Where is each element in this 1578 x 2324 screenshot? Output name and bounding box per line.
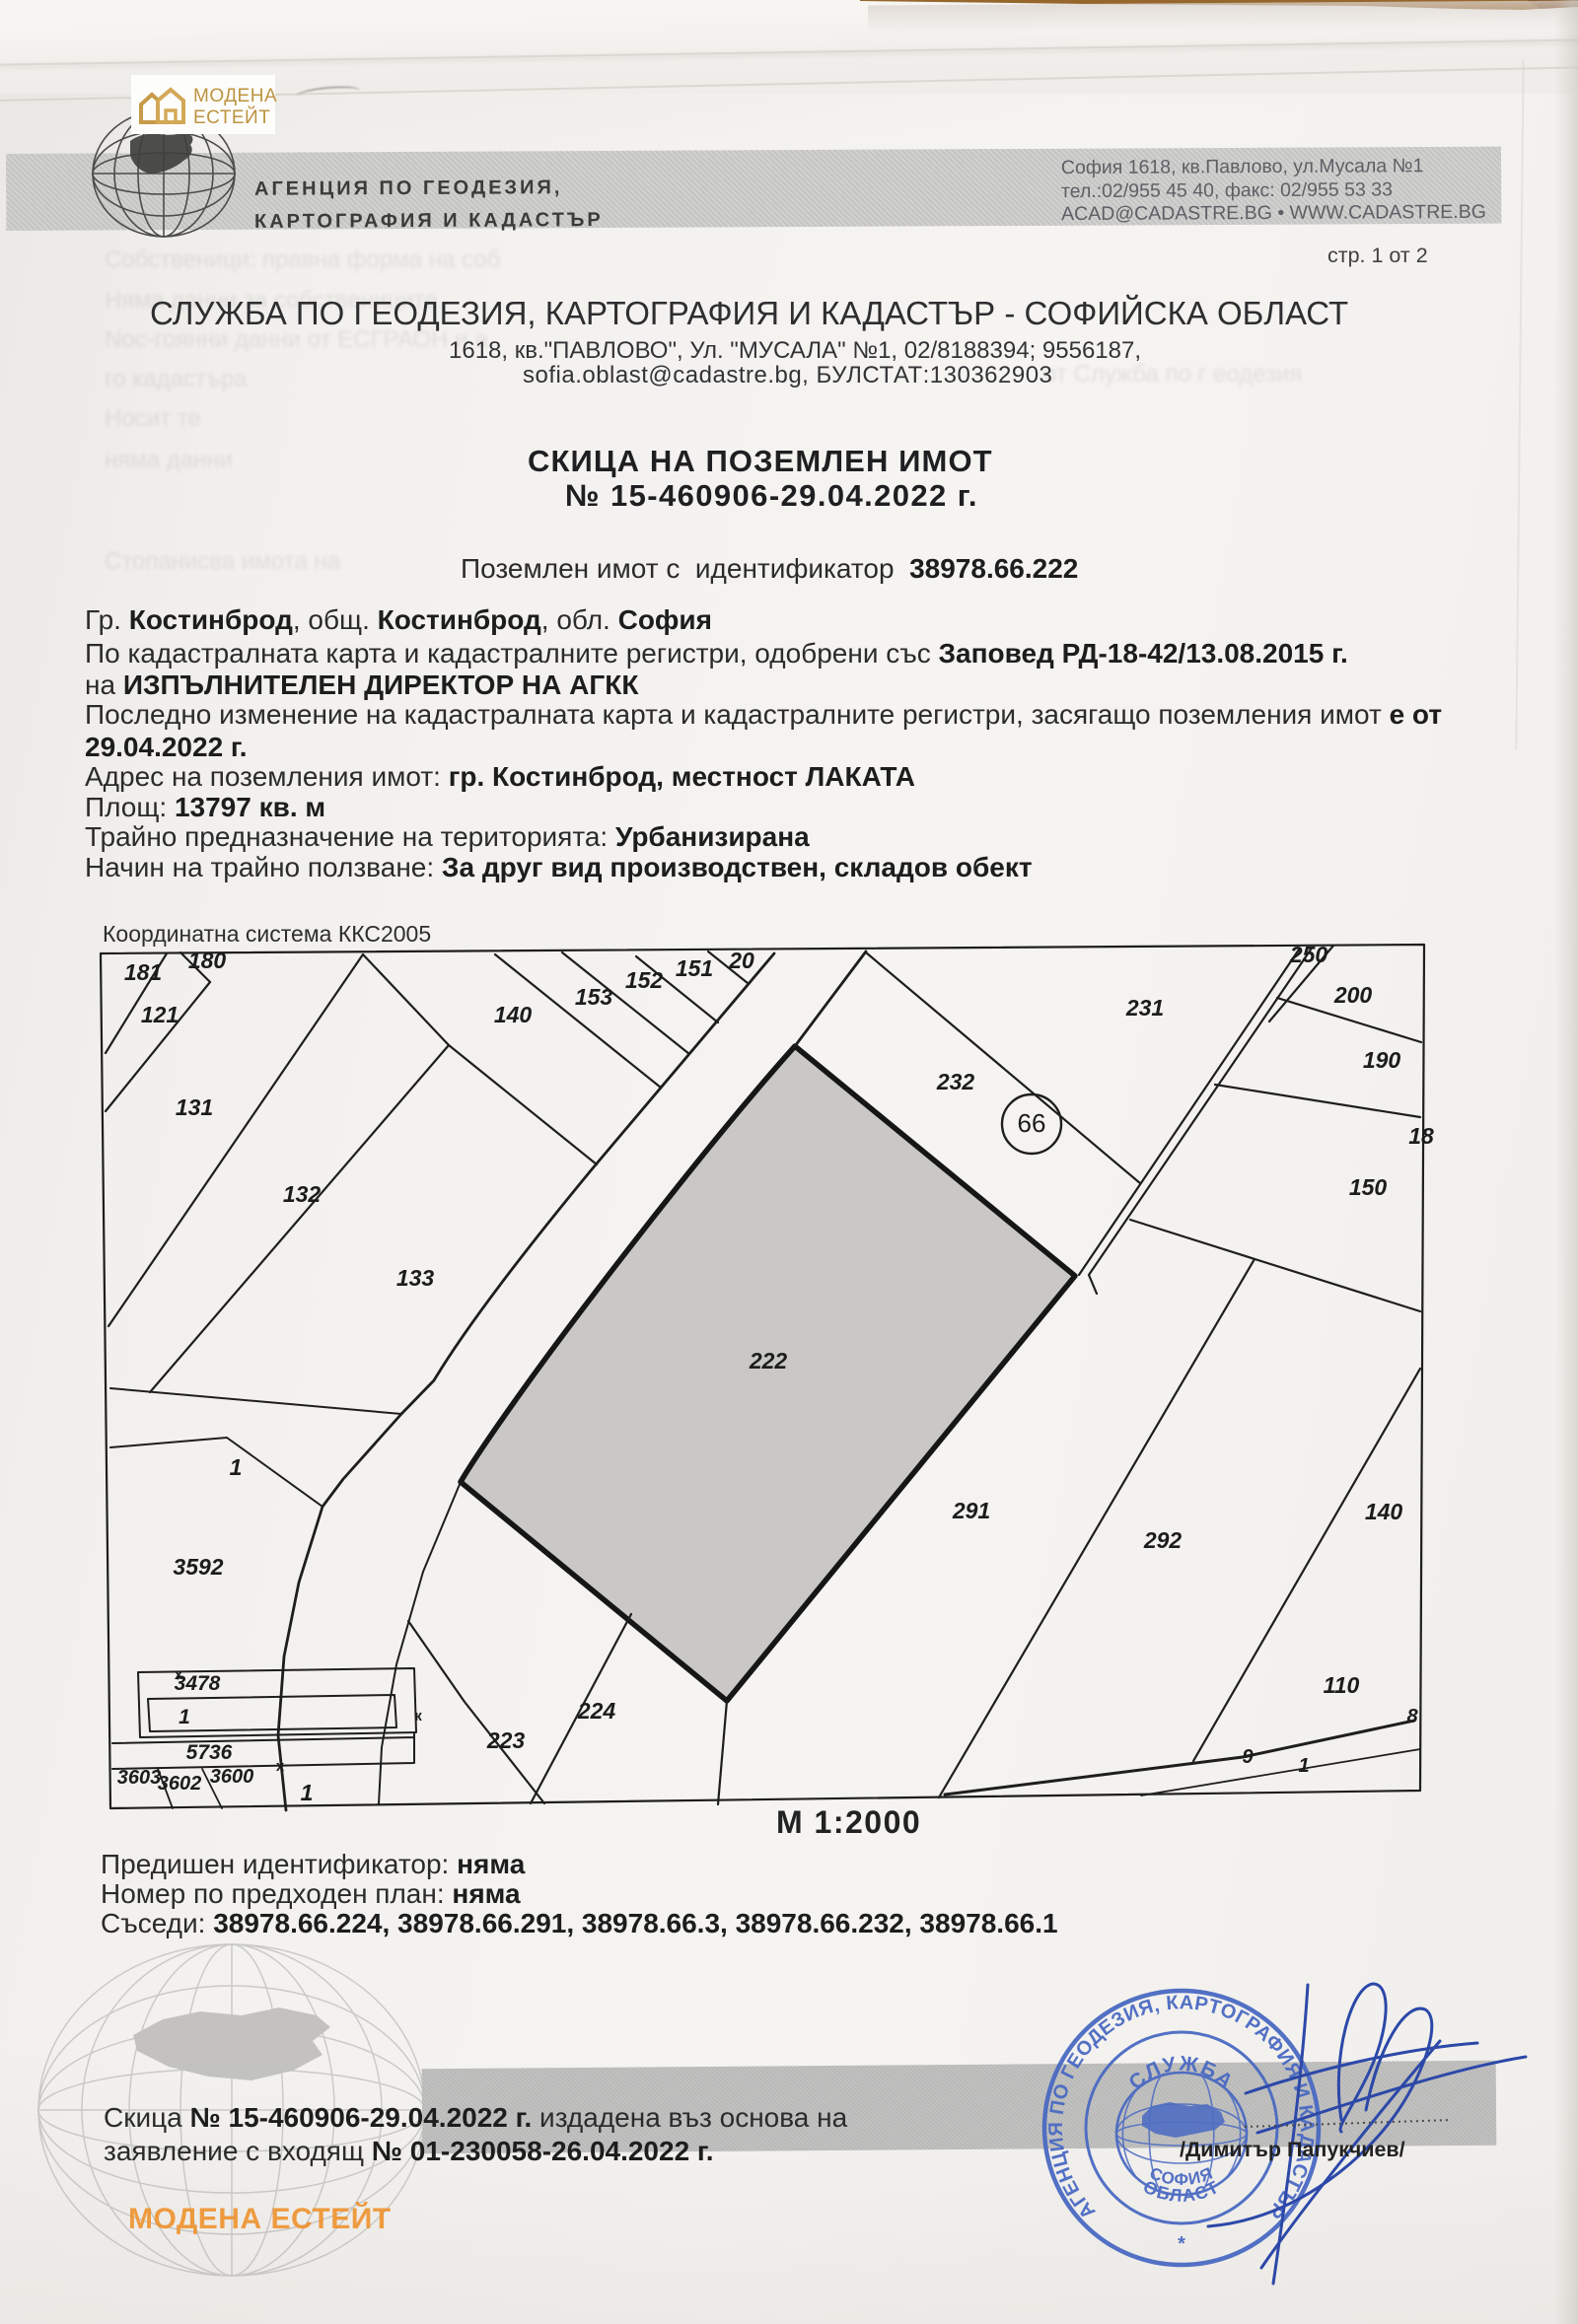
- svg-text:131: 131: [176, 1094, 213, 1120]
- svg-text:232: 232: [936, 1069, 975, 1094]
- svg-text:1: 1: [1298, 1755, 1309, 1777]
- svg-text:9: 9: [1242, 1746, 1254, 1768]
- svg-text:66: 66: [1018, 1108, 1046, 1138]
- svg-text:291: 291: [952, 1498, 990, 1523]
- svg-text:223: 223: [486, 1727, 526, 1753]
- svg-text:150: 150: [1349, 1174, 1388, 1200]
- svg-text:1: 1: [301, 1780, 314, 1805]
- svg-text:20: 20: [728, 948, 754, 973]
- svg-text:к: к: [414, 1708, 422, 1725]
- svg-text:18: 18: [1408, 1123, 1434, 1149]
- svg-text:3600: 3600: [210, 1766, 254, 1788]
- svg-text:8: 8: [1406, 1706, 1418, 1727]
- svg-text:1: 1: [230, 1454, 243, 1480]
- svg-text:222: 222: [749, 1348, 788, 1373]
- svg-text:224: 224: [577, 1698, 616, 1724]
- svg-text:5736: 5736: [186, 1741, 233, 1764]
- svg-text:292: 292: [1143, 1527, 1183, 1553]
- svg-text:1: 1: [179, 1706, 190, 1728]
- svg-text:250: 250: [1289, 942, 1328, 967]
- svg-text:231: 231: [1125, 995, 1164, 1021]
- svg-text:132: 132: [283, 1181, 322, 1207]
- svg-text:133: 133: [396, 1265, 435, 1291]
- svg-text:153: 153: [575, 984, 613, 1010]
- svg-text:3592: 3592: [173, 1554, 223, 1580]
- svg-text:140: 140: [1365, 1499, 1403, 1524]
- svg-text:х: х: [175, 1666, 183, 1683]
- svg-text:3602: 3602: [158, 1773, 202, 1795]
- svg-text:151: 151: [676, 955, 713, 981]
- svg-text:110: 110: [1324, 1672, 1360, 1698]
- svg-text:х: х: [276, 1758, 285, 1775]
- svg-text:181: 181: [124, 959, 162, 985]
- svg-text:121: 121: [141, 1002, 179, 1027]
- svg-text:180: 180: [188, 948, 227, 973]
- svg-text:140: 140: [494, 1002, 533, 1027]
- svg-text:152: 152: [625, 967, 664, 993]
- svg-text:200: 200: [1333, 982, 1373, 1008]
- svg-text:190: 190: [1363, 1047, 1401, 1073]
- svg-text:3603: 3603: [117, 1767, 162, 1789]
